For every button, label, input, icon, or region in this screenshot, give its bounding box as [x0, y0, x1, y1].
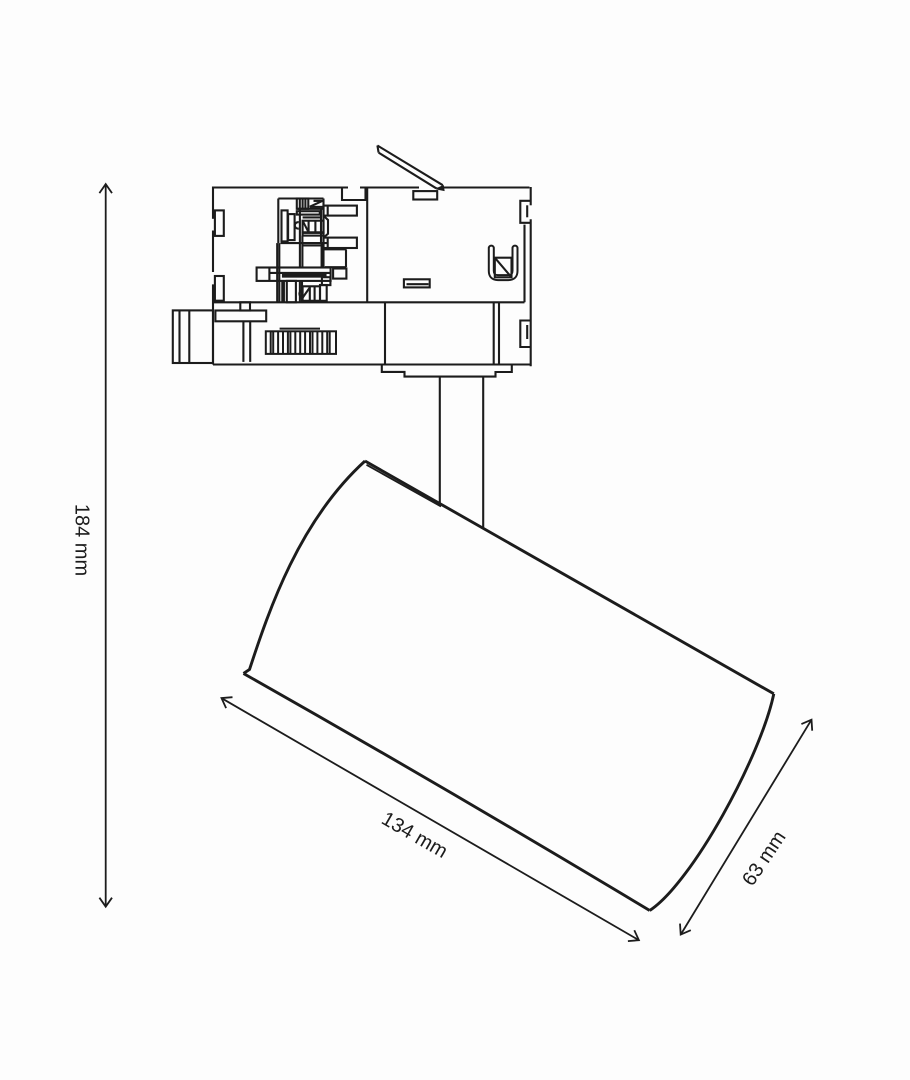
svg-text:184 mm: 184 mm	[71, 504, 93, 576]
svg-text:134 mm: 134 mm	[378, 808, 452, 863]
svg-text:63 mm: 63 mm	[738, 827, 790, 890]
